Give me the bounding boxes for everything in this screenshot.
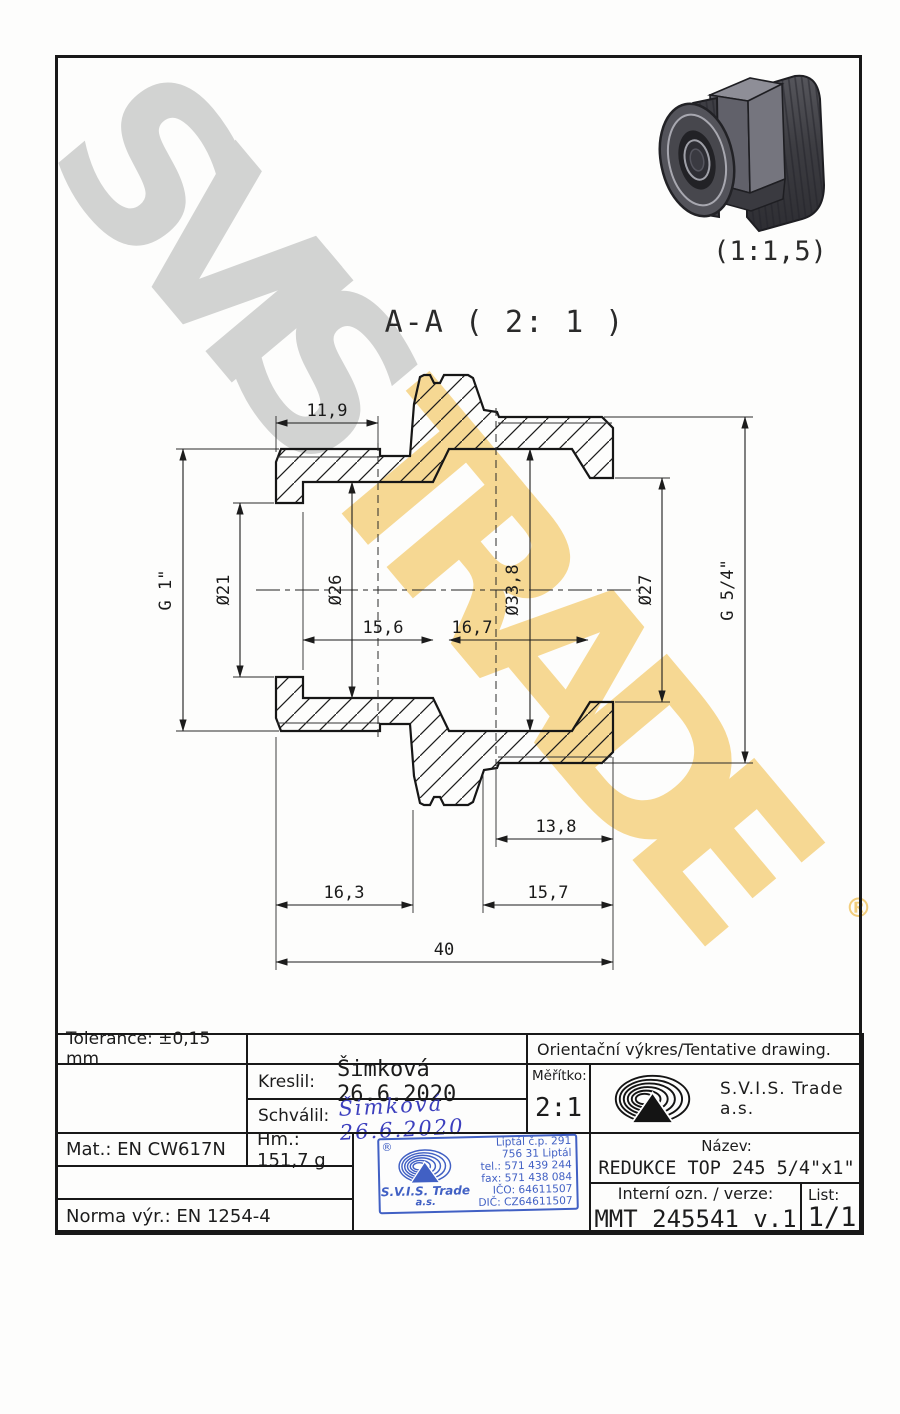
pictorial-render	[650, 76, 824, 231]
list-label: List:	[802, 1184, 839, 1204]
kreslil-label: Kreslil:	[248, 1072, 315, 1092]
drawing-canvas: A-A ( 2: 1 )	[0, 0, 900, 1040]
company-stamp: ® S.V.I.S. Trade a.s. Liptál č.p. 291 75…	[377, 1134, 579, 1215]
material-text: Mat.: EN CW617N	[66, 1139, 226, 1160]
dim-label-40: 40	[434, 940, 454, 960]
dim-label-15-7: 15,7	[528, 883, 569, 903]
meritko-value: 2:1	[528, 1084, 589, 1132]
dim-label-16-7: 16,7	[452, 618, 493, 638]
interni-label: Interní ozn. / verze:	[618, 1184, 773, 1203]
cell-empty-left	[55, 1063, 248, 1134]
nazev-label: Název:	[701, 1137, 752, 1155]
company-logo-icon	[611, 1068, 694, 1130]
pictorial-scale-label: (1:1,5)	[713, 236, 827, 267]
dim-label-15-6: 15,6	[363, 618, 404, 638]
cell-meritko: Měřítko: 2:1	[526, 1063, 591, 1134]
dim-label-13-8: 13,8	[536, 817, 577, 837]
stamp-address: Liptál č.p. 291 756 31 Liptál tel.: 571 …	[469, 1136, 576, 1210]
cell-material: Mat.: EN CW617N	[55, 1132, 248, 1167]
stamp-company-name: S.V.I.S. Trade	[381, 1184, 470, 1198]
section-label: A-A ( 2: 1 )	[385, 305, 626, 340]
cell-tolerance: Tolerance: ±0,15 mm	[55, 1033, 248, 1065]
norma-text: Norma výr.: EN 1254-4	[66, 1206, 271, 1227]
dim-label-d21: Ø21	[214, 575, 234, 606]
dim-label-d27: Ø27	[636, 575, 656, 606]
scanned-drawing-page: { "watermark": { "word1": "SVIS", "word2…	[0, 0, 900, 1288]
interni-value: MMT 245541 v.1	[594, 1205, 796, 1233]
part-top-wall	[276, 375, 613, 503]
schvalil-label: Schválil:	[248, 1106, 329, 1126]
company-name: S.V.I.S. Trade a.s.	[720, 1079, 862, 1119]
part-bottom-wall	[276, 677, 613, 805]
stamp-logo-icon	[392, 1146, 457, 1185]
meritko-label: Měřítko:	[528, 1065, 589, 1084]
dim-label-16-3: 16,3	[324, 883, 365, 903]
stamp-line-6: DIČ: CZ64611507	[471, 1196, 573, 1210]
cell-list: List: 1/1	[800, 1182, 864, 1235]
dim-label-g1: G 1"	[156, 570, 176, 611]
list-value: 1/1	[808, 1202, 857, 1233]
stamp-registered-icon: ®	[381, 1141, 392, 1154]
cell-orientation-note: Orientační výkres/Tentative drawing.	[526, 1033, 864, 1065]
dim-label-11-9: 11,9	[307, 401, 348, 421]
stamp-left: ® S.V.I.S. Trade a.s.	[379, 1138, 471, 1212]
nazev-value: REDUKCE TOP 245 5/4"x1"	[598, 1158, 854, 1179]
cell-norma: Norma výr.: EN 1254-4	[55, 1198, 354, 1235]
dim-label-g54: G 5/4"	[718, 559, 738, 620]
cell-interni: Interní ozn. / verze: MMT 245541 v.1	[589, 1182, 802, 1235]
cell-empty-bottom	[55, 1165, 354, 1200]
cell-company: S.V.I.S. Trade a.s.	[589, 1063, 864, 1134]
orientation-note-text: Orientační výkres/Tentative drawing.	[537, 1040, 831, 1059]
dim-label-d26: Ø26	[326, 575, 346, 606]
dim-label-d33-8: Ø33,8	[503, 564, 523, 615]
stamp-company-suffix: a.s.	[415, 1197, 436, 1208]
cell-weight: Hm.: 151,7 g	[246, 1132, 354, 1167]
section-view	[256, 375, 642, 805]
dimension-lines: 11,9 15,6 16,7 13,8 16,3 15,7 40 G 1" Ø2…	[156, 401, 753, 970]
cell-nazev: Název: REDUKCE TOP 245 5/4"x1"	[589, 1132, 864, 1184]
